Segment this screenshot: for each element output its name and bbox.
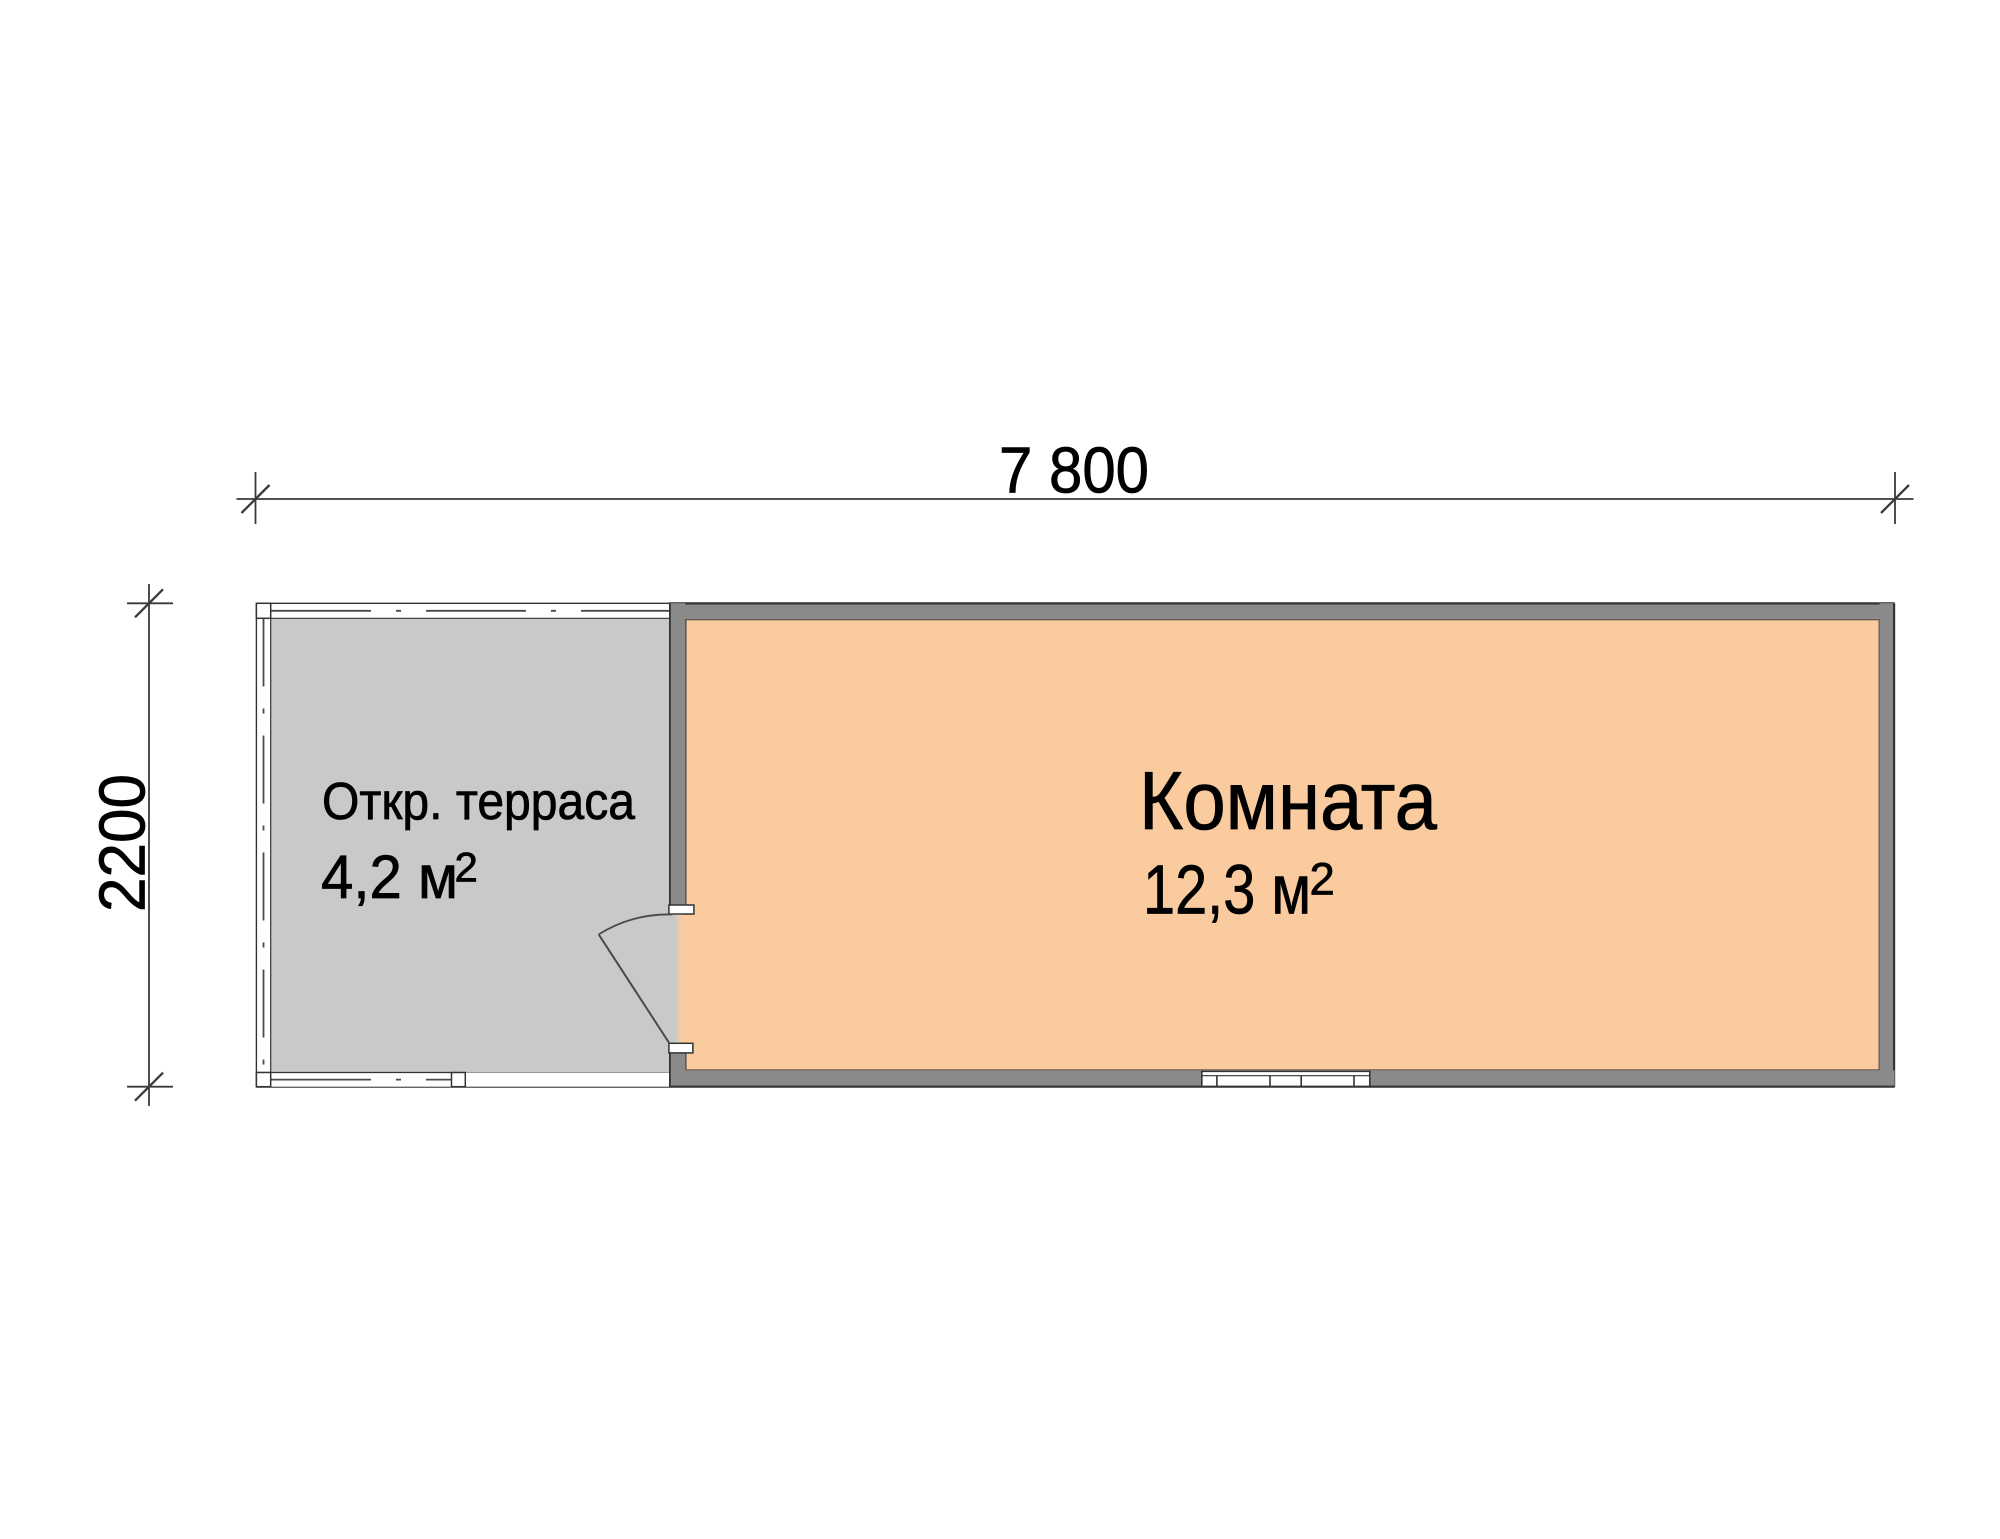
svg-text:7 800: 7 800 xyxy=(999,434,1149,507)
svg-text:Откр. терраса: Откр. терраса xyxy=(322,772,635,830)
svg-text:2: 2 xyxy=(1310,854,1335,905)
svg-text:12,3 м: 12,3 м xyxy=(1143,851,1311,929)
svg-text:2200: 2200 xyxy=(86,774,159,912)
svg-text:2: 2 xyxy=(455,844,478,891)
svg-text:4,2 м: 4,2 м xyxy=(321,843,458,911)
svg-text:Комната: Комната xyxy=(1139,754,1438,847)
